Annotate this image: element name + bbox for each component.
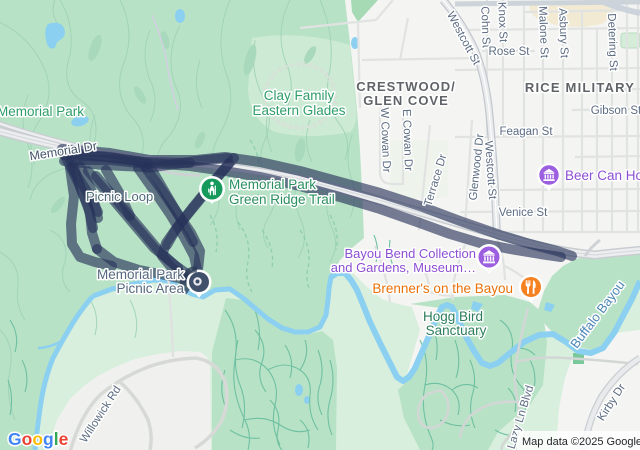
svg-text:Cohn St: Cohn St (478, 6, 491, 49)
svg-text:Bayou Bend Collection: Bayou Bend Collection (344, 246, 476, 261)
svg-text:Gibson St: Gibson St (591, 105, 640, 117)
svg-text:Hogg Bird: Hogg Bird (423, 309, 483, 324)
svg-text:Beer Can Hou: Beer Can Hou (565, 168, 640, 183)
svg-text:GLEN COVE: GLEN COVE (363, 93, 449, 108)
svg-text:Google: Google (8, 429, 69, 449)
svg-text:Asbury St: Asbury St (556, 8, 570, 59)
svg-text:Sanctuary: Sanctuary (426, 323, 487, 338)
svg-text:Brenner's on the Bayou: Brenner's on the Bayou (372, 281, 513, 296)
svg-text:Detering St: Detering St (605, 13, 619, 72)
svg-text:Venice St: Venice St (499, 207, 548, 219)
svg-text:E Cowan Dr: E Cowan Dr (400, 109, 414, 172)
svg-text:Picnic Loop: Picnic Loop (86, 189, 153, 204)
svg-text:Map data ©2025 Google: Map data ©2025 Google (522, 436, 640, 448)
svg-text:Rose St: Rose St (489, 46, 531, 58)
svg-text:RICE MILITARY: RICE MILITARY (525, 80, 635, 95)
svg-text:Clay Family: Clay Family (264, 88, 335, 103)
svg-text:Malone St: Malone St (536, 6, 550, 59)
svg-text:and Gardens, Museum…: and Gardens, Museum… (331, 260, 476, 275)
svg-text:Feagan St: Feagan St (499, 126, 553, 138)
svg-text:Eastern Glades: Eastern Glades (252, 103, 345, 118)
svg-text:Knox St: Knox St (495, 2, 508, 43)
svg-text:Memorial Park: Memorial Park (0, 104, 84, 119)
svg-text:Memorial Park: Memorial Park (97, 267, 184, 282)
svg-text:Green Ridge Trail: Green Ridge Trail (229, 192, 335, 207)
svg-text:Picnic Area: Picnic Area (116, 281, 184, 296)
svg-text:W Cowan Dr: W Cowan Dr (378, 107, 392, 173)
svg-text:Memorial Park: Memorial Park (229, 177, 316, 192)
svg-text:CRESTWOOD/: CRESTWOOD/ (356, 79, 456, 94)
